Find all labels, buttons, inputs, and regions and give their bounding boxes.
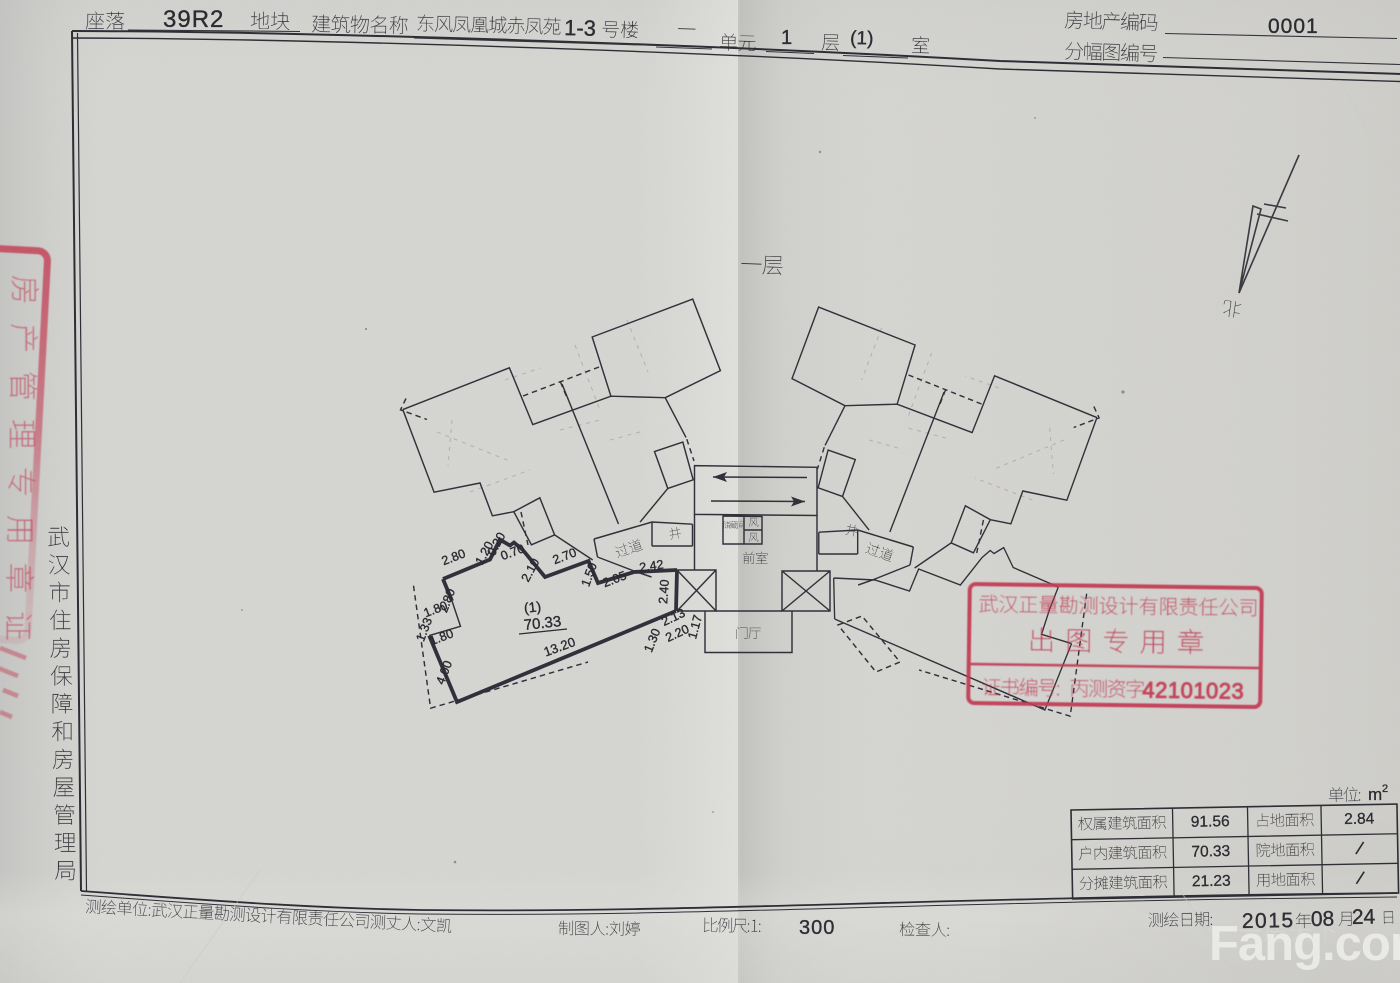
- svg-text:21.23: 21.23: [1192, 873, 1231, 891]
- svg-text:0001: 0001: [1268, 15, 1319, 38]
- svg-text:42101023: 42101023: [1142, 677, 1244, 703]
- svg-text:1: 1: [781, 27, 792, 49]
- svg-text:300: 300: [799, 917, 835, 939]
- svg-text:91.56: 91.56: [1191, 813, 1230, 831]
- svg-text:m: m: [1368, 785, 1382, 804]
- svg-text:24: 24: [1352, 906, 1376, 929]
- svg-text:1-3: 1-3: [564, 15, 596, 41]
- svg-text:2.84: 2.84: [1344, 810, 1375, 828]
- svg-text:2: 2: [1382, 783, 1388, 795]
- svg-text:39R2: 39R2: [163, 6, 224, 33]
- svg-text:(1): (1): [850, 28, 874, 50]
- svg-text:2015: 2015: [1242, 909, 1295, 933]
- svg-text:2.40: 2.40: [656, 579, 672, 604]
- svg-text:08: 08: [1311, 908, 1335, 931]
- svg-text:(1): (1): [523, 598, 542, 616]
- svg-text:70.33: 70.33: [1191, 843, 1230, 861]
